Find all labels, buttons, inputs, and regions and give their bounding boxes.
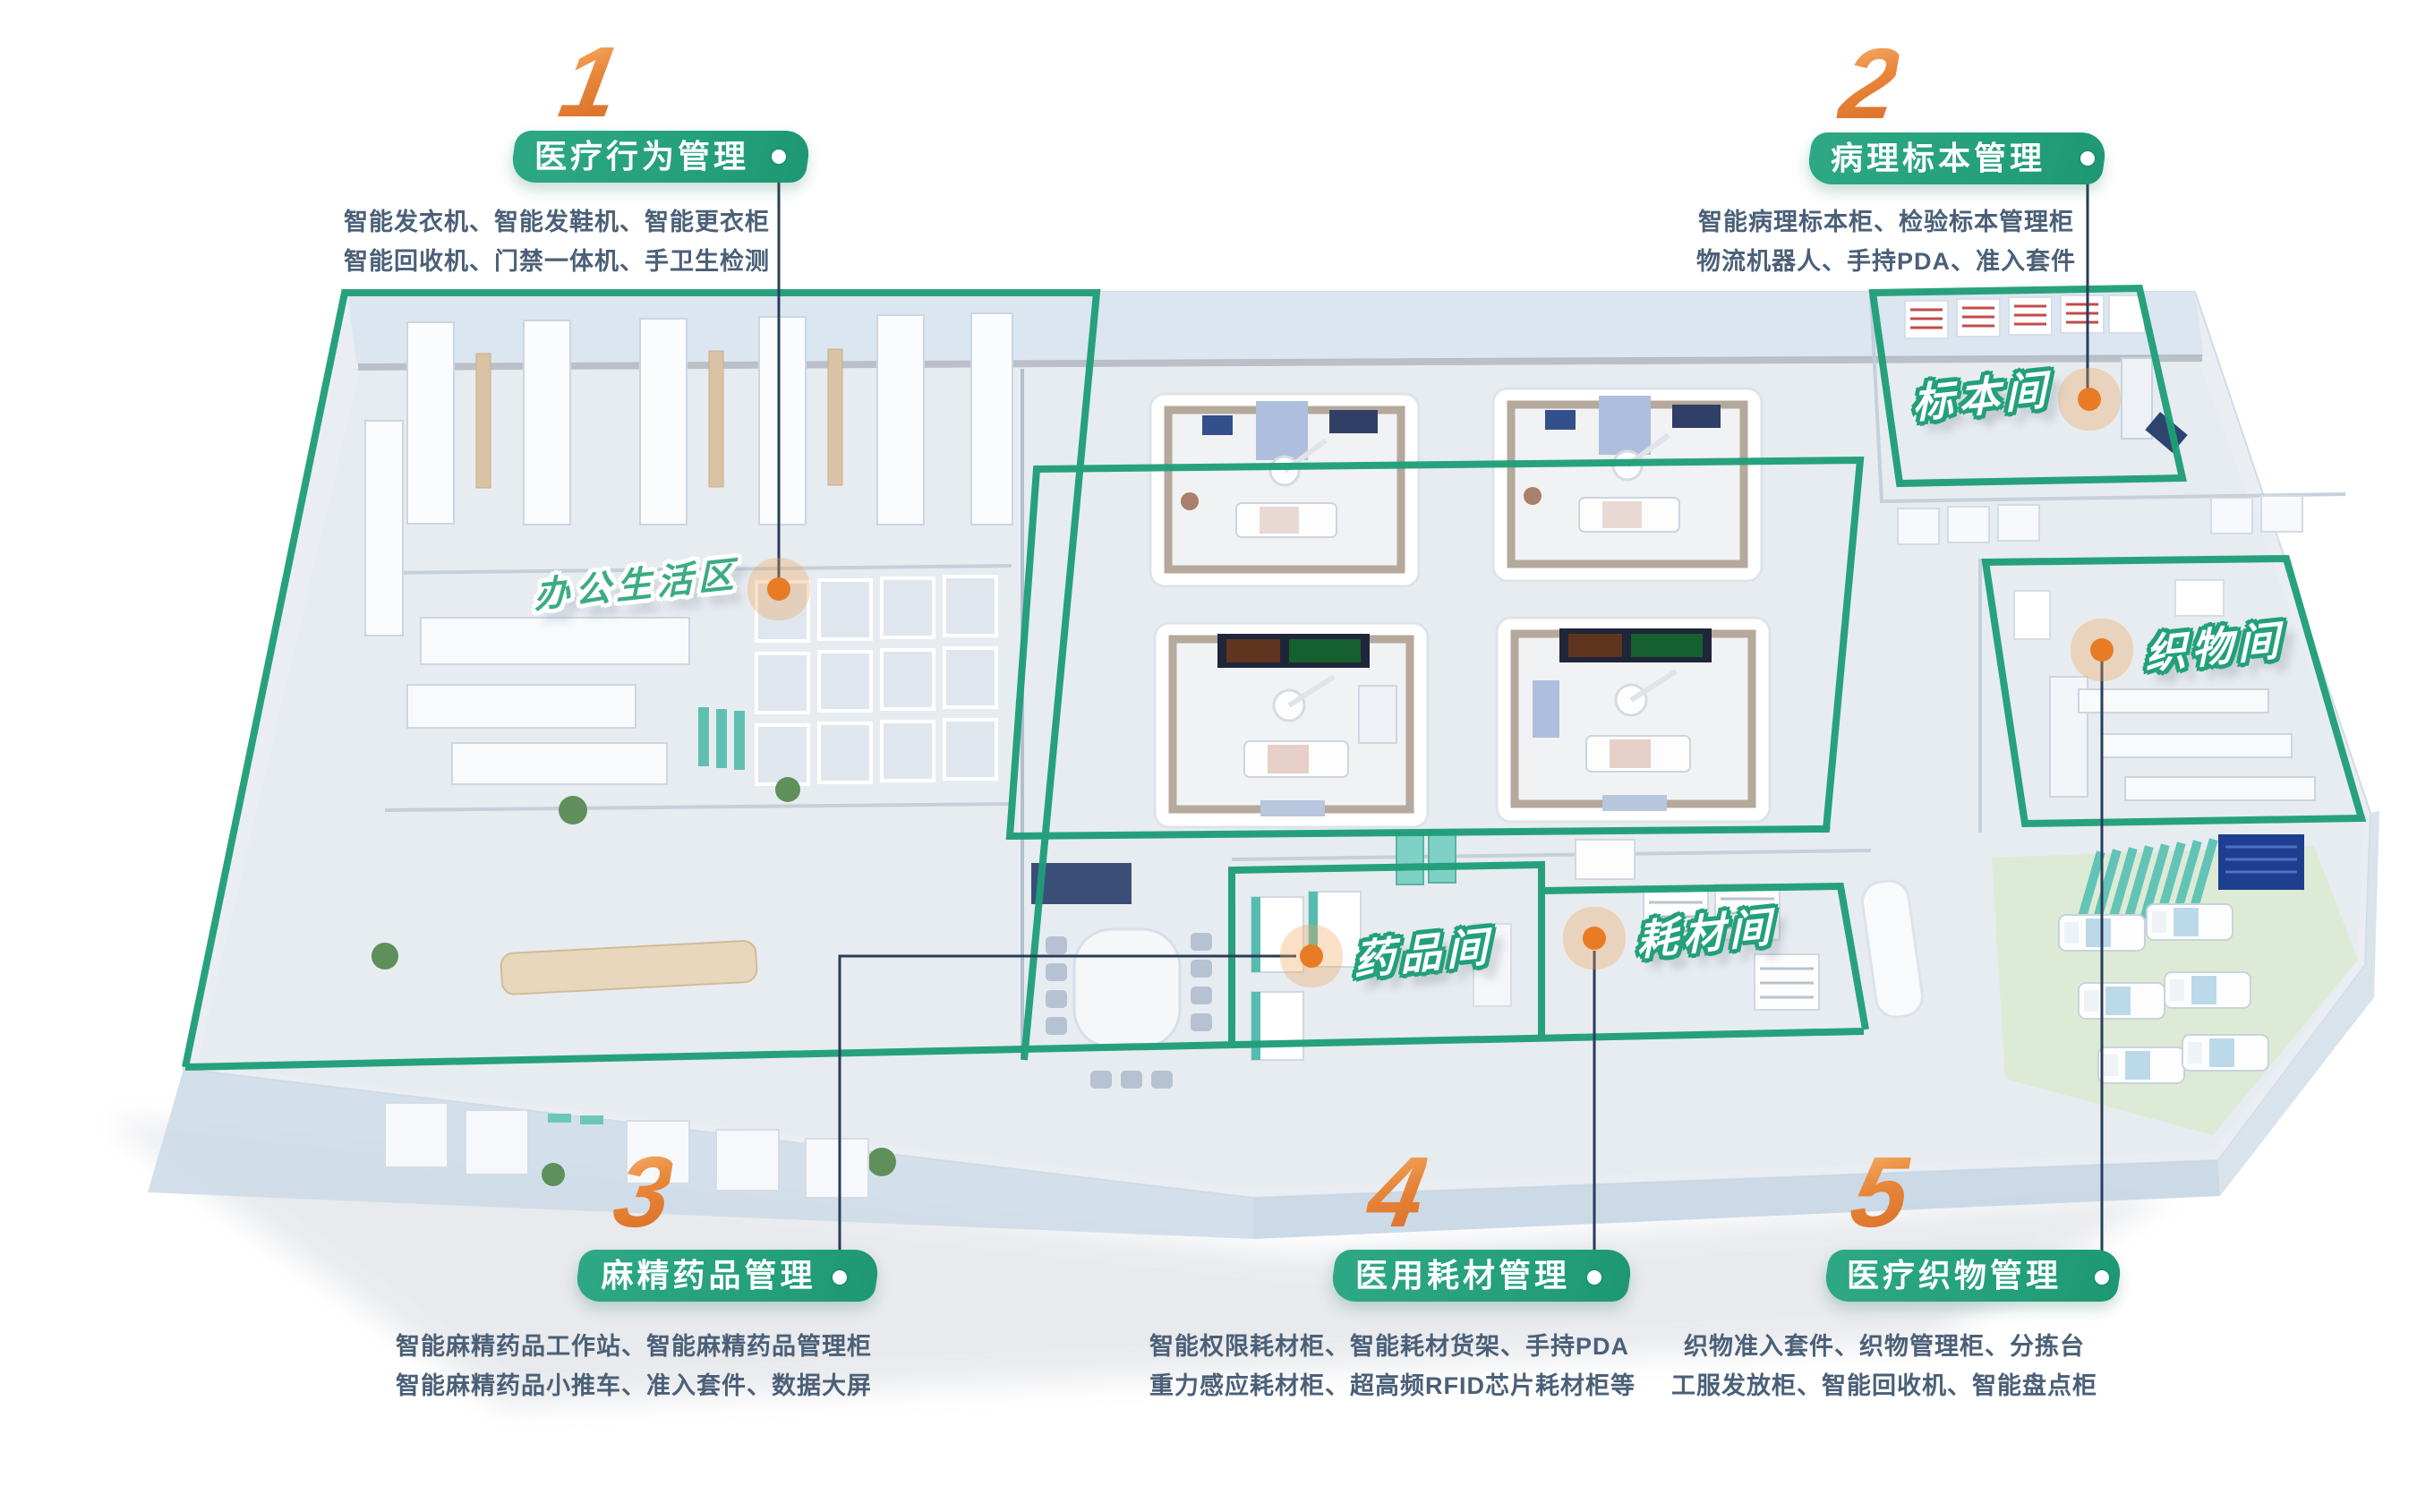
section-description-4: 智能权限耗材柜、智能耗材货架、手持PDA 重力感应耗材柜、超高频RFID芯片耗材… — [1149, 1327, 1579, 1405]
badge-connector-dot-5 — [2095, 1270, 2109, 1285]
section-description-2: 智能病理标本柜、检验标本管理柜 物流机器人、手持PDA、准入套件 — [1671, 202, 2101, 281]
room-marker-medicine-room — [1300, 944, 1323, 968]
section-badge-1: 医疗行为管理 — [509, 131, 812, 183]
section-title-4: 医用耗材管理 — [1333, 1250, 1630, 1302]
section-description-3: 智能麻精药品工作站、智能麻精药品管理柜 智能麻精药品小推车、准入套件、数据大屏 — [396, 1327, 825, 1405]
room-marker-office-area — [767, 577, 790, 601]
description-line: 智能发衣机、智能发鞋机、智能更衣柜 — [342, 202, 772, 242]
description-line: 智能回收机、门禁一体机、手卫生检测 — [342, 242, 772, 281]
badge-connector-dot-2 — [2080, 151, 2095, 166]
description-line: 工服发放柜、智能回收机、智能盘点柜 — [1670, 1366, 2099, 1405]
badge-connector-dot-3 — [833, 1270, 847, 1285]
section-title-1: 医疗行为管理 — [513, 131, 808, 183]
description-line: 智能麻精药品工作站、智能麻精药品管理柜 — [396, 1327, 825, 1366]
section-description-5: 织物准入套件、织物管理柜、分拣台 工服发放柜、智能回收机、智能盘点柜 — [1670, 1327, 2099, 1405]
description-line: 智能权限耗材柜、智能耗材货架、手持PDA — [1149, 1327, 1579, 1366]
section-description-1: 智能发衣机、智能发鞋机、智能更衣柜 智能回收机、门禁一体机、手卫生检测 — [342, 202, 772, 281]
description-line: 织物准入套件、织物管理柜、分拣台 — [1670, 1327, 2099, 1366]
section-badge-5: 医疗织物管理 — [1823, 1250, 2123, 1302]
section-title-2: 病理标本管理 — [1809, 132, 2105, 184]
section-badge-2: 病理标本管理 — [1806, 132, 2108, 184]
room-marker-textile-room — [2090, 638, 2114, 662]
badge-connector-dot-4 — [1587, 1270, 1601, 1285]
description-line: 物流机器人、手持PDA、准入套件 — [1671, 242, 2101, 281]
room-marker-consumable-room — [1583, 927, 1606, 950]
description-line: 重力感应耗材柜、超高频RFID芯片耗材柜等 — [1149, 1366, 1579, 1405]
badge-connector-dot-1 — [772, 149, 786, 164]
room-marker-specimen-room — [2078, 388, 2101, 411]
section-title-5: 医疗织物管理 — [1826, 1250, 2120, 1302]
description-line: 智能麻精药品小推车、准入套件、数据大屏 — [396, 1366, 825, 1405]
description-line: 智能病理标本柜、检验标本管理柜 — [1671, 202, 2101, 242]
facility-infographic: 1 医疗行为管理 智能发衣机、智能发鞋机、智能更衣柜 智能回收机、门禁一体机、手… — [0, 0, 2417, 1512]
